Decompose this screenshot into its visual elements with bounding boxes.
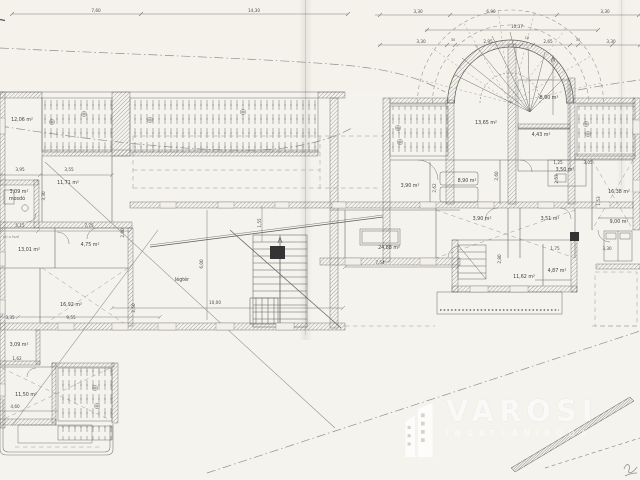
dimension-label: 10,00 xyxy=(209,300,221,305)
dimension-label: 3,95 xyxy=(15,167,25,172)
dimension-label: 7,60 xyxy=(91,8,101,13)
room-area-label: 4,43 m² xyxy=(532,132,551,138)
dimension-label: 1,53 xyxy=(596,196,601,206)
dimension-label: 3,30 xyxy=(602,246,612,251)
room-area-label: 8,90 m² xyxy=(540,95,559,101)
room-area-label: 3,90 m² xyxy=(401,183,420,189)
dimension-label: 10 xyxy=(525,36,529,40)
dimension-label: 2,80 xyxy=(497,254,502,264)
terrace-railings xyxy=(42,98,318,440)
dimension-label: 2,95 xyxy=(483,39,493,44)
dimension-label: 6,90 xyxy=(486,9,496,14)
dimension-label: 3,30 xyxy=(413,9,423,14)
room-area-label: 3,09 m² xyxy=(10,189,29,195)
room-area-label: 16,92 m² xyxy=(60,302,82,308)
dimension-label: 1,25 xyxy=(553,160,563,165)
dimension-label: 1,55 xyxy=(257,218,262,228)
room-area-label: 16,38 m² xyxy=(608,189,630,195)
dimension-label: 4,60 xyxy=(10,404,20,409)
dimension-label: 7,75 xyxy=(84,223,94,228)
room-area-label: 3,50 m² xyxy=(556,167,575,173)
edge-note-label: eti a fszé xyxy=(3,235,20,239)
dimension-label: 5,15 xyxy=(15,223,25,228)
dimension-label: 3,05 xyxy=(583,160,593,165)
room-area-label: 3,90 m² xyxy=(473,216,492,222)
dimension-label: 6,00 xyxy=(199,259,204,269)
room-area-label: 4,87 m² xyxy=(548,268,567,274)
corner-scribble xyxy=(624,465,637,476)
room-area-label: mosdó xyxy=(9,195,25,202)
dimension-label: 3,30 xyxy=(606,39,616,44)
room-area-label: 11,50 m² xyxy=(15,392,37,398)
room-area-label: 3,51 m² xyxy=(541,216,560,222)
room-area-label: 9,00 m² xyxy=(610,219,629,225)
door-arcs xyxy=(27,160,610,377)
room-area-label: 24,88 m² xyxy=(378,245,400,251)
room-area-label: 11,71 m² xyxy=(57,180,79,186)
dimension-label: 2,50 xyxy=(131,303,136,313)
dimension-label: 10,37 xyxy=(511,24,523,29)
dimension-label: 2,53 xyxy=(554,174,559,184)
dimension-label: 3,30 xyxy=(600,9,610,14)
room-area-label: 4,75 m² xyxy=(81,242,100,248)
dimension-label: 9,55 xyxy=(66,315,76,320)
stair-left xyxy=(250,235,307,327)
dimension-label: 3,30 xyxy=(41,191,46,201)
room-area-label: 8,90 m² xyxy=(458,178,477,184)
dimension-label: 7,54 xyxy=(375,260,385,265)
dimension-label: 30 xyxy=(451,38,455,42)
dimension-label: 3,30 xyxy=(416,39,426,44)
dimension-label: 2,65 xyxy=(543,39,553,44)
dimension-label: 1,75 xyxy=(550,246,560,251)
dimension-label: 2,62 xyxy=(432,183,437,193)
dimension-label: 2,80 xyxy=(120,228,125,238)
room-area-label: 12,06 m² xyxy=(11,117,33,123)
room-area-label: 3,09 m² xyxy=(10,342,29,348)
dimension-label: 14,30 xyxy=(248,8,260,13)
buildings-icon xyxy=(402,401,436,457)
watermark: VÁROSI INGATLANIRODA xyxy=(402,397,640,463)
corridor-walls xyxy=(130,202,633,265)
room-area-label: 11,62 m² xyxy=(513,274,535,280)
dimension-label: 3,35 xyxy=(5,315,15,320)
room-area-label: 13,01 m² xyxy=(18,247,40,253)
watermark-brand: VÁROSI xyxy=(446,397,598,426)
room-area-label: légtér xyxy=(175,276,189,283)
room-area-label: 13,65 m² xyxy=(475,120,497,126)
dimension-label: 2,60 xyxy=(494,171,499,181)
watermark-subtitle: INGATLANIRODA xyxy=(446,429,598,438)
dimension-label: 30 xyxy=(576,38,580,42)
dimension-label: 3,55 xyxy=(64,167,74,172)
dimension-label: 1,62 xyxy=(12,356,22,361)
scanned-floor-plan-page: 12,06 m²11,71 m²3,09 m²mosdó13,01 m²4,75… xyxy=(0,0,640,480)
